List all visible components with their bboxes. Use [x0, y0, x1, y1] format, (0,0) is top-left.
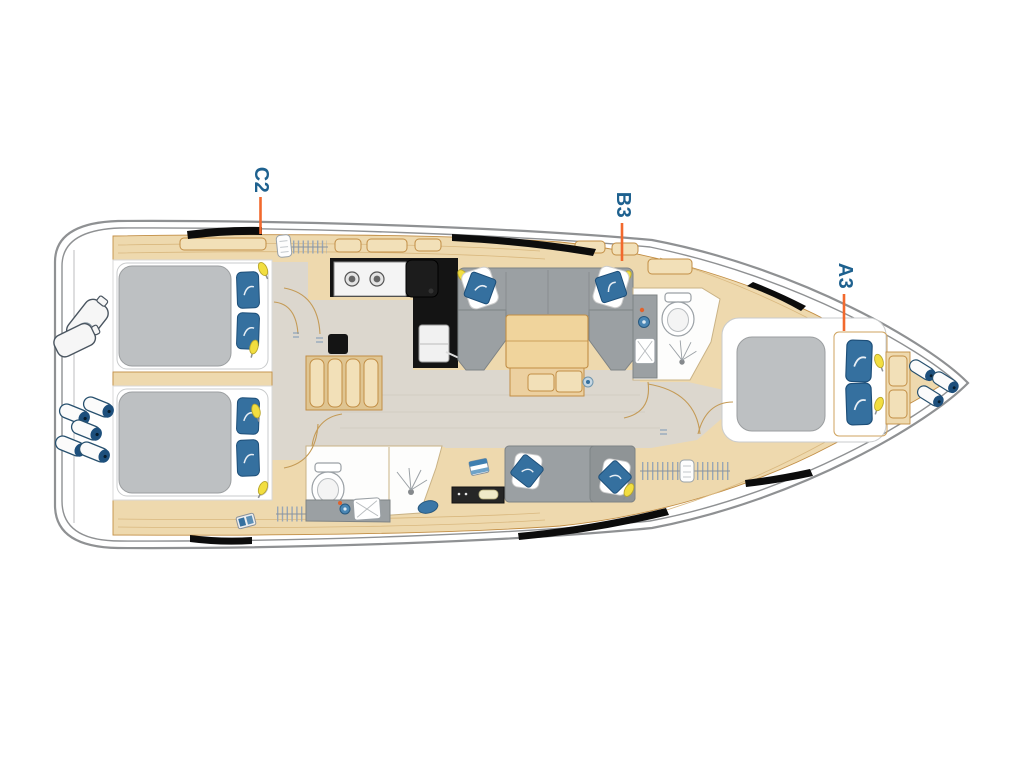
pillow: [236, 272, 259, 309]
yacht-floorplan-diagram: C2 B3 A3: [0, 0, 1024, 768]
cabin-divider: [113, 372, 272, 386]
forward-cabin: [722, 318, 910, 442]
cabin-label-text[interactable]: C2: [250, 167, 272, 194]
companionway-stairs: [306, 356, 382, 410]
starboard-settee: [505, 446, 636, 502]
mattress: [119, 392, 231, 493]
burner-icon: [370, 272, 384, 286]
mattress: [737, 337, 825, 431]
sink-icon: [635, 338, 655, 363]
sink-icon: [353, 498, 381, 521]
cabin-label-text[interactable]: A3: [834, 263, 856, 290]
pillow: [846, 340, 873, 382]
vanity-counter: [633, 295, 657, 378]
pillow: [236, 440, 259, 477]
book-item: [469, 458, 490, 475]
toilet-icon: [662, 293, 694, 336]
aft-cabin-port: [113, 260, 272, 372]
seat-icon: [680, 460, 694, 482]
aft-cabin-starboard: [113, 386, 272, 500]
cabin-label-text[interactable]: B3: [612, 192, 634, 219]
mattress: [119, 266, 231, 366]
aft-head: [306, 446, 442, 522]
salon-table: [506, 315, 593, 396]
seat-icon: [276, 234, 292, 257]
burner-icon: [345, 272, 359, 286]
floor-hatch: [328, 334, 348, 354]
pillow: [846, 383, 873, 425]
